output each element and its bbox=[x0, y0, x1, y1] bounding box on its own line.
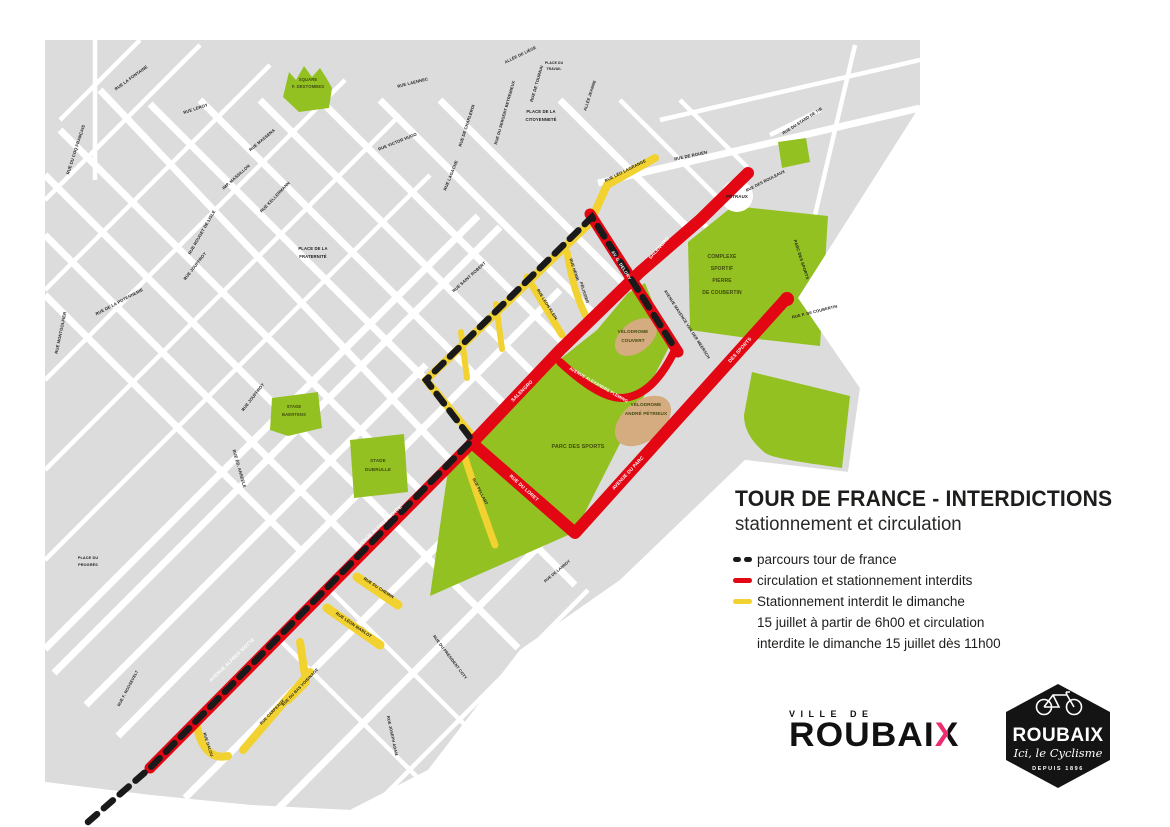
poster-page: SQUAREF. DESTOMBESCOMPLEXESPORTIFPIERRED… bbox=[0, 0, 1170, 827]
map-label: TRAVAIL bbox=[546, 67, 561, 71]
map-label: PLACE DU bbox=[78, 556, 99, 560]
badge-tagline: Ici, le Cyclisme bbox=[1013, 746, 1103, 760]
map-label: SQUARE bbox=[299, 77, 318, 82]
legend-dash-swatch bbox=[733, 549, 757, 570]
map-label: STADE bbox=[287, 404, 302, 409]
map-label: DE COUBERTIN bbox=[702, 290, 742, 296]
map-label: DUBRULLE bbox=[365, 467, 391, 472]
map-label: CITOYENNETÉ bbox=[525, 117, 556, 122]
map-label: BAERTENS bbox=[282, 412, 306, 417]
map-label: ANDRÉ PÉTRIEUX bbox=[625, 409, 668, 416]
map-label: VÉLODROME bbox=[631, 400, 662, 407]
roubaix-wordmark: ROUBAIXX bbox=[789, 719, 959, 751]
legend-red-swatch bbox=[733, 570, 757, 591]
roubaix-cyclisme-badge: ROUBAIX Ici, le Cyclisme DEPUIS 1896 bbox=[1002, 681, 1114, 793]
roubaix-x-glyph: XX bbox=[935, 719, 960, 751]
map-label: PLACE DE LA bbox=[526, 109, 555, 114]
ville-de-roubaix-logo: VILLE DE ROUBAIXX bbox=[789, 709, 953, 751]
page-subtitle: stationnement et circulation bbox=[735, 514, 1147, 536]
map-label: PLACE DE LA bbox=[298, 246, 327, 251]
legend-yellow-swatch bbox=[733, 591, 757, 612]
legend: parcours tour de france circulation et s… bbox=[733, 549, 1001, 654]
legend-item-parcours: parcours tour de france bbox=[733, 549, 1001, 570]
map-label: COMPLEXE bbox=[707, 254, 737, 260]
page-title: TOUR DE FRANCE - INTERDICTIONS bbox=[735, 486, 1138, 512]
map-label: PIERRE bbox=[712, 278, 732, 284]
legend-label-line: Stationnement interdit le dimanche bbox=[757, 591, 1001, 612]
legend-item-circulation: circulation et stationnement interdits bbox=[733, 570, 1001, 591]
legend-item-stationnement: Stationnement interdit le dimanche 15 ju… bbox=[733, 591, 1001, 654]
legend-label-line: interdite le dimanche 15 juillet dès 11h… bbox=[757, 633, 1001, 654]
map-label: PÉTRAUX bbox=[726, 194, 748, 199]
map-label: PARC DES SPORTS bbox=[552, 444, 605, 450]
map-label: SPORTIF bbox=[711, 266, 734, 272]
map-label: PROGRÈS bbox=[78, 562, 98, 567]
map-label: STADE bbox=[370, 458, 386, 463]
badge-name: ROUBAIX bbox=[1012, 725, 1103, 746]
legend-label: circulation et stationnement interdits bbox=[757, 570, 972, 591]
map-label: FRATERNITÉ bbox=[299, 254, 326, 259]
map-label: COUVERT bbox=[621, 338, 644, 343]
stadium-dubrulle bbox=[350, 434, 408, 498]
map-label: F. DESTOMBES bbox=[292, 84, 324, 89]
info-panel: TOUR DE FRANCE - INTERDICTIONS stationne… bbox=[735, 486, 1155, 536]
map-label: VÉLODROME bbox=[618, 327, 649, 334]
map-canvas: SQUAREF. DESTOMBESCOMPLEXESPORTIFPIERRED… bbox=[0, 0, 1170, 827]
legend-label-line: 15 juillet à partir de 6h00 et circulati… bbox=[757, 612, 1001, 633]
map-label: PLACE DU bbox=[545, 61, 564, 65]
badge-since: DEPUIS 1896 bbox=[1032, 766, 1084, 772]
legend-label: parcours tour de france bbox=[757, 549, 897, 570]
